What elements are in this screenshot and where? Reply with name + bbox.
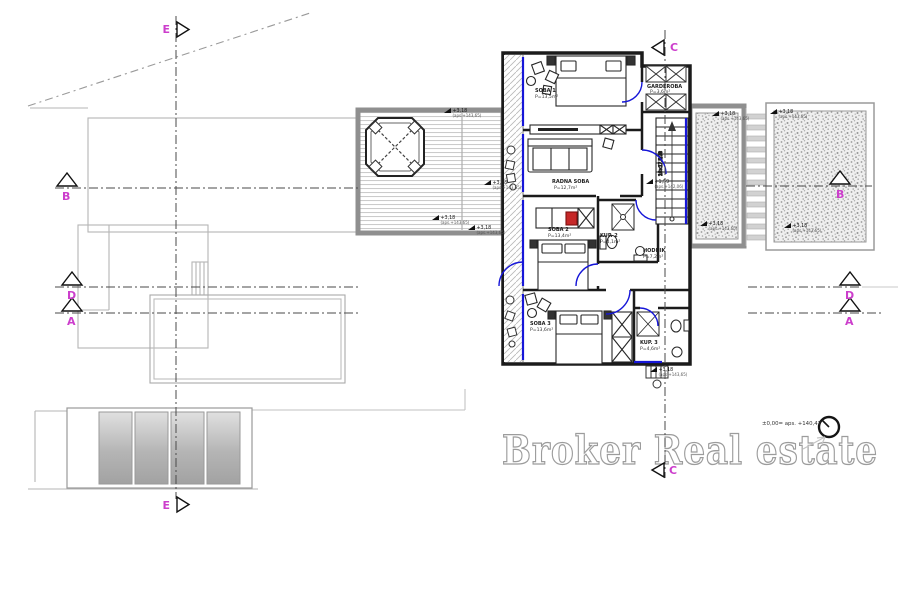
spot-elevation-datum: (aps.+142,06) <box>655 184 684 189</box>
staircase: 16×17,5/28 <box>656 118 688 224</box>
section-arrow-icon <box>177 22 189 37</box>
room-label: SOBA 2 <box>548 227 569 233</box>
room-label: HODNIK <box>643 248 667 254</box>
room-label: RADNA SOBA <box>552 179 589 185</box>
section-arrow-icon <box>840 272 860 285</box>
exterior-stair-context <box>192 262 208 295</box>
section-label-d-left: D <box>67 289 76 302</box>
nightstand-icon <box>589 240 596 248</box>
section-label-c-bottom: C <box>669 464 677 477</box>
nightstand-icon <box>547 56 555 65</box>
bedroom2-furniture <box>530 208 596 290</box>
table-icon <box>528 309 537 318</box>
spot-elevation-datum: (aps.+143,65) <box>779 114 808 119</box>
room-area: P=4,1m² <box>600 239 620 245</box>
room-area: P=13,6m² <box>530 327 553 333</box>
desk-chair-icon <box>603 138 614 149</box>
spot-elevation-datum: (aps.+143,65) <box>441 220 470 225</box>
section-arrow-icon <box>57 173 77 186</box>
glass-canopy <box>67 408 252 488</box>
datum-elevation-note: ±0,00= aps. +140,47 <box>762 421 821 427</box>
nightstand-icon <box>548 311 555 319</box>
section-arrow-icon <box>177 497 189 512</box>
room-label: KUP. 3 <box>640 340 658 346</box>
deck-terrace <box>358 110 503 233</box>
jacuzzi <box>366 118 424 176</box>
toilet-icon <box>684 320 689 331</box>
room-area: P=3,6m² <box>650 89 670 95</box>
section-label-b-right: B <box>836 188 844 201</box>
sink-icon <box>672 347 682 357</box>
section-arrow-icon <box>652 40 664 55</box>
pool-outline <box>150 295 345 383</box>
stair-note: 16×17,5/28 <box>658 151 663 176</box>
canopy-panel <box>207 412 240 484</box>
chair-icon <box>525 293 537 305</box>
spot-elevation-datum: (aps.+143,65) <box>477 230 506 235</box>
section-arrow-icon <box>62 272 82 285</box>
section-label-b-left: B <box>62 190 70 203</box>
spot-elevation-datum: (aps.+143,65) <box>453 113 482 118</box>
spot-elevation-datum: (aps.+143,65) <box>493 185 522 190</box>
section-label-a-left: A <box>67 315 76 328</box>
room-area: P=7,2m² <box>643 254 663 260</box>
room-label: SOBA 1 <box>535 88 556 94</box>
canopy-panel <box>135 412 168 484</box>
lower-floor-footprint <box>88 118 358 232</box>
spot-elevation-datum: (aps.+143,65) <box>659 372 688 377</box>
section-label-e-bottom: E <box>162 499 170 512</box>
spot-elevation-datum: (aps.+143,65) <box>721 116 750 121</box>
section-label-a-right: A <box>845 315 854 328</box>
study-furniture <box>528 139 592 172</box>
nightstand-icon <box>627 56 635 65</box>
red-cabinet-icon <box>566 212 577 225</box>
room-area: P=13,5m² <box>535 94 558 100</box>
section-label-e-top: E <box>162 23 170 36</box>
nightstand-icon <box>530 240 537 248</box>
room-area: P=4,6m² <box>640 346 660 352</box>
canopy-panel <box>99 412 132 484</box>
room-label: KUP. 2 <box>600 233 618 239</box>
floor-plan-canvas: 16×17,5/28 <box>0 0 900 600</box>
floor-plan-drawing: 16×17,5/28 <box>0 0 900 600</box>
room-area: P=13,4m² <box>548 233 571 239</box>
pergola-strip <box>746 108 768 246</box>
section-label-c-top: C <box>670 41 678 54</box>
spot-elevation-datum: (aps.+143,65) <box>709 226 738 231</box>
room-label: SOBA 3 <box>530 321 551 327</box>
building: 16×17,5/28 <box>499 53 690 388</box>
room-area: P=12,7m² <box>554 185 577 191</box>
table-icon <box>527 77 536 86</box>
nightstand-icon <box>604 311 611 319</box>
spot-elevation-datum: (aps.+143,65) <box>793 228 822 233</box>
section-label-d-right: D <box>845 289 854 302</box>
